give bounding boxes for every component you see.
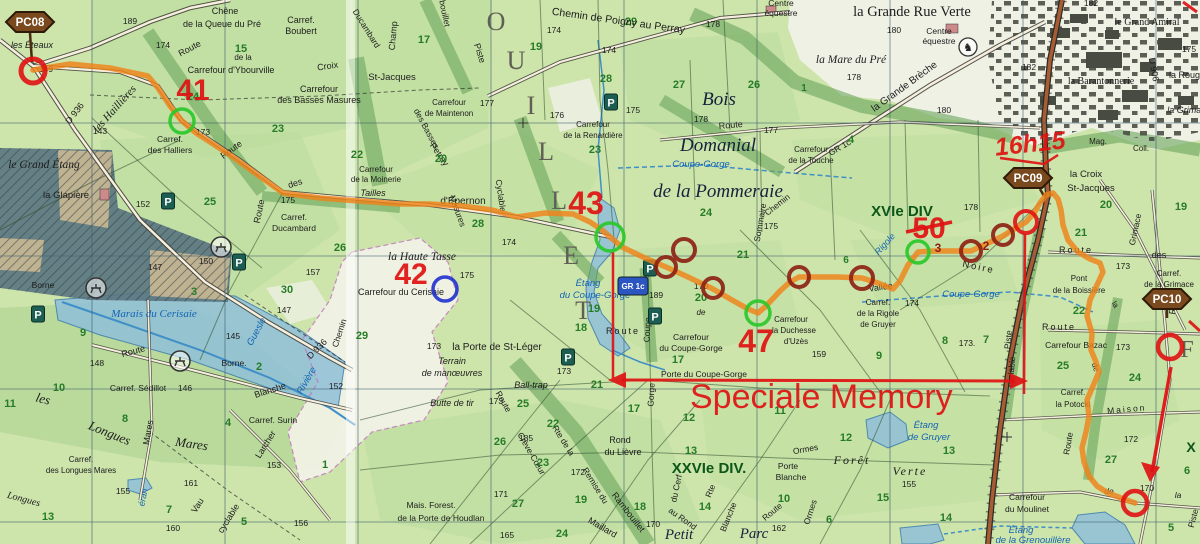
map-label: 5 [241,516,247,528]
map-label: Carrefour [576,120,610,129]
pond [900,524,944,544]
map-label: E [563,241,579,270]
map-label: Butte de tir [430,398,475,408]
map-label: 177 [764,125,778,135]
map-label: 180 [937,105,951,115]
map-label: Carref. [1061,388,1085,397]
map-label: du Lièvre [604,447,641,457]
map-label: Carrefour [794,145,828,154]
map-label: Boubert [285,26,317,36]
map-label: d'Uzès [784,337,808,346]
map-label: 172 [571,467,585,477]
map-label: 11 [4,398,16,410]
map-label: 174 [156,40,170,50]
map-label: Carref. [69,455,93,464]
map-label: 22 [351,149,363,161]
map-label: Mais. Forest. [406,500,455,510]
map-label: Carref. [287,15,315,25]
map-label: 159 [812,349,826,359]
map-label: 9 [80,327,86,339]
map-label: du Coupe-Gorge [659,343,723,353]
map-label: de la Rigole [857,309,900,318]
map-label: 8 [942,335,948,347]
map-label: 6 [843,255,849,266]
map-label: 28 [472,218,484,230]
map-label: Carref. Surin [249,415,297,425]
map-label: 174 [905,298,919,308]
map-label: 173 [427,341,441,351]
seam-layer [346,0,355,544]
building-block [1098,110,1118,120]
map-label: 173 [1116,261,1130,271]
parking-icon-letter: P [164,197,171,209]
map-label: 25 [517,398,529,410]
map-label: Carrefour [673,332,709,342]
map-label: 24 [556,528,569,540]
map-label: Blanche [776,472,807,482]
map-label: 173 [489,396,503,406]
map-label: 177 [480,98,494,108]
map-label: 4 [848,134,855,146]
control-number: 47 [738,323,774,359]
building-block [1158,38,1182,50]
map-label: Tailles [360,188,386,198]
map-label: Gorge [645,383,656,407]
map-label: le Grand Amiral [1115,17,1180,28]
parking-icon-letter: P [607,98,614,110]
map-label: 21 [737,249,749,261]
map-label: 17 [418,34,430,46]
map-label: Borne [32,280,55,290]
map-label: 13 [685,445,697,457]
map-label: 146 [178,383,192,393]
map-label: 157 [306,267,320,277]
map-label: 178 [694,114,708,124]
map-label: Marais du Cerisaie [110,308,197,320]
pc-sign-label: PC08 [16,17,45,29]
map-label: U [507,46,526,75]
scan-seam [346,0,355,544]
map-label: Carrefour [432,98,466,107]
map-label: Centre [926,26,952,36]
map-label: L [538,137,554,166]
map-label: Forêt [833,453,871,467]
control-number: 50 [912,212,945,245]
map-label: Coll. [1133,144,1149,153]
map-label: O [487,7,506,36]
building-block [100,189,109,200]
map-label: X [1186,439,1196,455]
map-label: 145 [226,331,240,341]
map-label: 156 [294,518,308,528]
map-label: Bois [702,89,736,110]
map-label: 29 [356,330,368,342]
map-label: équestre [764,8,797,18]
map-label: Borne. [221,358,246,368]
map-label: 13 [42,511,54,523]
map-label: 178 [706,19,720,29]
map-label: 148 [90,358,104,368]
map-label: 174 [602,45,616,55]
parking-icon-letter: P [34,310,41,322]
map-label: la Croix [1070,169,1102,180]
map-label: 22 [547,418,559,430]
map-label: Carrefour Bazac [1045,340,1108,350]
map-label: de [697,308,706,317]
map-label: de la Grimace [1144,280,1194,289]
map-label: 160 [166,523,180,533]
map-label: 26 [748,79,760,91]
map-label: 17 [628,403,640,415]
control-number: 42 [394,258,427,291]
parking-icon-letter: P [235,258,242,270]
map-label: 178 [964,202,978,212]
control-number: 43 [568,185,604,221]
map-label: 170 [646,519,660,529]
map-label: Domanial [679,135,756,156]
map-label: 150 [199,256,213,266]
map-label: 24 [700,207,713,219]
control-number: 41 [176,74,209,107]
map-label: 23 [589,144,601,156]
map-label: Mag. [1089,137,1107,146]
map-label: de Gruyer [860,320,896,329]
map-label: 178 [847,72,861,82]
map-label: 24 [1129,372,1142,384]
building-block [1178,96,1194,105]
map-label: 162 [772,523,786,533]
map-label: 25 [1057,360,1069,372]
map-label: 174 [547,25,561,35]
map-label: 26 [334,242,346,254]
map-label: Route [606,326,640,336]
map-label: la Duchesse [772,326,817,335]
map-label: 7 [983,334,989,346]
map-label: 21 [1075,227,1087,239]
map-label: Verte [893,464,928,478]
map-label: de la Porte de Houdlan [398,513,485,523]
map-label: 7 [166,504,172,516]
map-label: 27 [512,498,524,510]
map-label: de la Queue du Pré [183,19,261,29]
map-label: 23 [537,457,549,469]
pc-sign-label: PC09 [1014,173,1043,185]
map-label: 153 [267,460,281,470]
topographic-map: Chênede la Queue du PréCarref.Boubert189… [0,0,1200,544]
map-label: 175 [1182,44,1196,54]
map-label: Coupe-Gorge [942,289,1000,300]
map-label: des Halliers [148,145,192,155]
map-label: 173 [1116,342,1130,352]
map-label: Carrefour [359,165,393,174]
map-label: 10 [778,493,790,505]
map-label: la Porte de St-Léger [452,342,542,353]
map-label: Rond [609,435,631,445]
map-label: de Gruyer [908,432,951,443]
control-digit: 2 [983,239,990,253]
building-block [1105,30,1119,39]
map-label: 14 [940,512,953,524]
map-label: 30 [281,284,293,296]
map-label: 8 [122,413,128,425]
map-label: équestre [922,36,955,46]
map-label: 182 [1084,0,1098,8]
map-label: T [575,296,591,325]
building-block [1122,90,1148,102]
map-label: Terrain [438,356,466,366]
map-label: 174 [502,237,516,247]
map-label: Carrefour [774,315,808,324]
annotation-line [1024,234,1025,394]
map-label: la Rouge [1169,70,1200,80]
map-label: 143 [93,126,107,136]
map-label: la Grande Rue Verte [853,4,971,20]
annotation-text: Speciale Memory [690,378,953,416]
map-label: des Basses Masures [277,95,361,105]
map-label: 25 [204,196,216,208]
map-label: Carref. [866,298,890,307]
map-label: XXVIe DIV. [672,460,747,477]
map-label: des Longues Mares [46,466,116,475]
map-label: 1 [801,83,807,94]
map-label: la Barantonnerie [1068,76,1135,87]
map-label: la [1175,490,1182,500]
map-label: 15 [877,492,889,504]
building-block [1070,14,1088,23]
map-label: des [1152,250,1167,260]
map-label: I [527,91,536,120]
map-label: Chêne [212,6,239,16]
gr-sign-label: GR 1c [621,282,645,291]
map-label: Pont [1071,274,1088,283]
map-label: 172 [1124,434,1138,444]
map-label: 173. [959,338,976,348]
map-label: Piste [1002,330,1014,350]
map-label: 2 [256,361,262,373]
map-label: Carref. [281,212,307,222]
map-label: 189 [123,16,137,26]
map-label: 19 [1175,201,1187,213]
map-label: 27 [673,79,685,91]
map-label: 155 [902,479,916,489]
map-screenshot: Chênede la Queue du PréCarref.Boubert189… [0,0,1200,544]
map-label: Ducambard [272,223,316,233]
map-label: 10 [53,382,65,394]
pc-sign-label: PC10 [1153,294,1182,306]
map-label: St-Jacques [1067,183,1115,194]
map-label: 175 [626,105,640,115]
map-label: de la Moinerie [351,175,402,184]
horse-icon-glyph: ♞ [963,42,973,54]
map-label: de la Grenouillère [996,535,1071,544]
map-label: la Grimace [1167,105,1200,115]
map-label: 13 [943,445,955,457]
map-label: 20 [1100,199,1112,211]
map-label: Carrefour [1009,492,1045,502]
map-label: 15 [235,43,247,55]
map-label: 189 [649,290,663,300]
map-label: 26 [494,436,506,448]
map-label: 175 [764,221,778,231]
map-label: 176 [550,110,564,120]
map-label: 12 [840,432,852,444]
map-label: 5 [1168,522,1174,534]
parking-icon-letter: P [651,312,658,324]
map-label: de la Renardière [563,131,623,140]
map-label: Route [718,119,743,131]
map-label: le Grand Étang [8,157,80,171]
map-label: 175 [460,270,474,280]
map-label: Porte [778,461,799,471]
map-label: 23 [272,123,284,135]
map-label: 4 [225,417,232,429]
parking-icon-letter: P [564,353,571,365]
map-label: 147 [277,305,291,315]
map-label: St-Jacques [368,72,416,83]
map-label: Route [1042,322,1076,332]
map-label: 14 [699,501,712,513]
map-label: Étang [914,420,940,431]
map-label: Carref. [1157,269,1181,278]
map-label: 171 [494,489,508,499]
map-label: 165 [500,530,514,540]
map-label: du Moulinet [1005,504,1050,514]
map-label: Centre [768,0,794,8]
parking-icon-letter: P [646,264,653,276]
map-label: 27 [1105,454,1117,466]
map-label: 3 [191,286,197,298]
map-label: la Mare du Pré [816,54,887,66]
hatched-zone-lines [0,238,44,272]
map-label: Carref. [157,134,183,144]
map-label: 152 [329,381,343,391]
map-label: Ball-trap [514,380,548,390]
map-label: de la Touche [788,156,834,165]
map-label: Carref. Sédillot [110,383,167,393]
map-label: Étang [576,278,602,289]
map-label: 155 [116,486,130,496]
map-label: 17 [672,354,684,366]
map-label: 147 [148,262,162,272]
map-label: Petit [664,527,694,543]
map-label: 161 [184,478,198,488]
map-label: 180 [887,25,901,35]
map-label: 22 [1073,305,1085,317]
map-label: 19 [575,494,587,506]
map-label: 20 [435,153,447,165]
map-label: 28 [600,73,612,85]
map-label: 1 [322,459,328,471]
map-label: Carrefour [300,84,338,94]
map-label: 6 [826,514,832,526]
map-label: 182 [1022,62,1036,72]
map-label: la Glapière [43,190,89,201]
map-label: 21 [591,379,603,391]
map-label: 152 [136,199,150,209]
map-label: 18 [634,501,646,513]
map-label: 6 [1184,465,1190,477]
map-label: Coupe-Gorge [672,159,730,170]
map-label: 19 [530,41,542,53]
map-label: de Maintenon [425,109,473,118]
map-label: de la Pommeraie [653,181,783,202]
map-label: de manœuvres [422,368,483,378]
map-label: Parc [739,526,769,542]
building-block [1086,52,1122,68]
map-label: 185 [519,433,533,443]
map-label: 173 [557,366,571,376]
map-label: 9 [876,350,882,362]
